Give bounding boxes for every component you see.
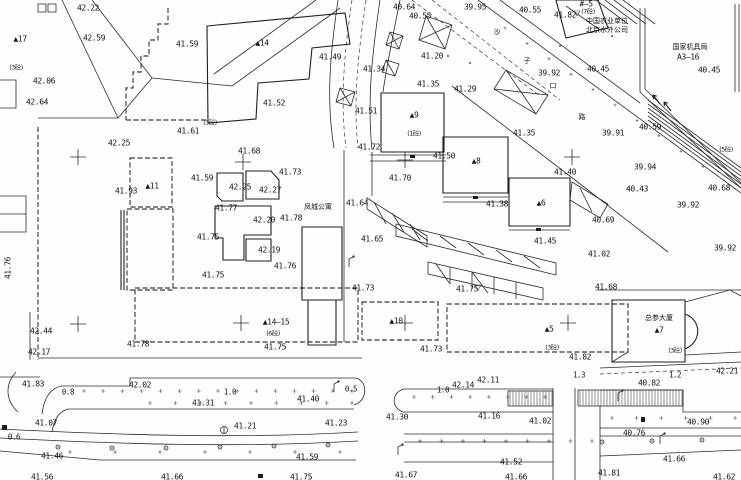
- spot-elevation-label: 39.91: [602, 129, 625, 138]
- building-number-label: ▲9: [410, 111, 419, 120]
- survey-cross-icon: [233, 315, 249, 331]
- spot-elevation-label: 42.25: [229, 183, 252, 192]
- spot-elevation-label: 41.30: [386, 413, 409, 422]
- spot-elevation-label: 41.66: [663, 455, 686, 464]
- solid-mark-icon: [641, 417, 645, 422]
- spot-elevation-label: 41.38: [486, 200, 509, 209]
- spot-elevation-label: 40.64: [393, 3, 416, 12]
- street-lamp-icon: [660, 434, 664, 444]
- spot-elevation-label: 41.59: [176, 40, 199, 49]
- spot-elevation-label: 39.92: [677, 201, 700, 210]
- place-name-label: 沙: [494, 28, 501, 36]
- survey-tick-icon: [548, 57, 551, 60]
- tree-symbols-layer: [56, 426, 704, 450]
- solid-mark-icon: [2, 425, 7, 430]
- spot-elevation-label: 42.20: [253, 216, 276, 225]
- survey-tick-icon: [273, 389, 277, 393]
- spot-elevation-label: 41.35: [417, 80, 440, 89]
- spot-elevation-label: A3—16: [677, 53, 700, 62]
- tree-icon: [701, 439, 702, 440]
- spot-elevation-label: 41.46: [41, 452, 64, 461]
- spot-elevation-label: 41.75: [197, 233, 220, 242]
- tree-icon: [651, 440, 652, 441]
- spot-elevation-label: 39.95: [464, 3, 487, 12]
- spot-dot-icon: [559, 45, 561, 47]
- spot-elevation-label: 41.70: [389, 174, 412, 183]
- place-name-label: 口: [550, 82, 557, 90]
- spot-elevation-label: 42.27: [259, 186, 282, 195]
- survey-cross-icon: [235, 154, 251, 170]
- building-number-label: ▲7: [655, 326, 664, 335]
- survey-tick-icon: [248, 450, 252, 454]
- storey-note-label: (6砼): [266, 329, 280, 338]
- spot-elevation-label: 42.17: [28, 348, 51, 357]
- spot-elevation-label: 41.52: [500, 458, 523, 467]
- tree-icon: [273, 445, 274, 446]
- spot-elevation-label: 41.83: [22, 380, 45, 389]
- spot-elevation-label: 41.59: [191, 174, 214, 183]
- spot-elevation-label: 42.11: [477, 376, 500, 385]
- survey-tick-icon: [504, 27, 507, 30]
- survey-tick-icon: [412, 395, 416, 399]
- spot-elevation-label: 41.73: [352, 284, 375, 293]
- survey-tick-icon: [325, 401, 329, 405]
- survey-tick-icon: [635, 416, 639, 420]
- place-name-label: 路: [579, 112, 586, 121]
- street-lamp-icon: [352, 255, 354, 257]
- survey-tick-icon: [274, 401, 278, 405]
- spot-elevation-label: 42.02: [129, 381, 152, 390]
- spot-elevation-label: 41.75: [202, 271, 225, 280]
- place-name-label: 子: [524, 57, 531, 65]
- survey-tick-icon: [82, 389, 86, 393]
- spot-elevation-label: 41.07: [35, 419, 58, 428]
- spot-elevation-label: 42.21: [716, 367, 739, 376]
- dimension-label: 0.5: [345, 385, 357, 394]
- survey-tick-icon: [148, 401, 152, 405]
- spot-elevation-label: 40.45: [587, 65, 610, 74]
- spot-elevation-label: 41.40: [297, 395, 320, 404]
- survey-tick-icon: [249, 401, 253, 405]
- spot-elevation-label: 41.67: [395, 471, 418, 480]
- survey-tick-icon: [113, 450, 117, 454]
- building-number-label: ▲17: [13, 35, 27, 44]
- survey-tick-icon: [197, 389, 201, 393]
- survey-tick-icon: [254, 389, 258, 393]
- place-name-label: 总参大厦: [645, 313, 673, 322]
- spot-elevation-label: 41.75: [264, 343, 287, 352]
- labels-layer: 42.2242.59▲17(3砼)42.0642.6441.59▲1441.49…: [4, 0, 739, 480]
- spot-elevation-label: 42.25: [108, 139, 131, 148]
- dimension-label: 0.8: [62, 388, 75, 397]
- tree-icon: [219, 446, 220, 447]
- storey-note-label: (3砼): [203, 118, 217, 127]
- building-number-label: ▲6: [537, 199, 546, 208]
- survey-tick-icon: [543, 395, 547, 399]
- spot-elevation-label: 41.51: [355, 107, 378, 116]
- spot-elevation-label: 41.29: [454, 85, 477, 94]
- spot-elevation-label: 41.64: [346, 199, 369, 208]
- tree-icon: [57, 446, 58, 447]
- spot-elevation-label: 40.45: [698, 66, 721, 75]
- survey-tick-icon: [636, 119, 639, 122]
- survey-tick-icon: [216, 389, 220, 393]
- building-number-label: ▲11: [145, 182, 159, 191]
- survey-tick-icon: [526, 42, 529, 45]
- spot-elevation-label: 41.93: [115, 187, 138, 196]
- street-lamp-icon: [401, 443, 403, 445]
- spot-elevation-label: 39.92: [538, 69, 561, 78]
- survey-tick-icon: [338, 450, 342, 454]
- survey-tick-icon: [449, 395, 453, 399]
- spot-dot-icon: [447, 55, 449, 57]
- spot-elevation-label: 40.59: [639, 123, 662, 132]
- spot-elevation-label: 40.55: [519, 6, 542, 15]
- spot-elevation-label: 41.45: [534, 237, 557, 246]
- storey-note-label: (3砼): [9, 63, 23, 72]
- survey-tick-icon: [468, 395, 472, 399]
- survey-tick-icon: [614, 104, 617, 107]
- survey-tick-icon: [203, 450, 207, 454]
- utility-manhole-icon: [220, 426, 227, 434]
- spot-elevation-label: 42.14: [452, 381, 475, 390]
- survey-tick-icon: [506, 395, 510, 399]
- spot-elevation-label: 41.35: [513, 129, 536, 138]
- place-name-label: 北京水外公司: [586, 25, 628, 34]
- survey-cross-icon: [70, 149, 86, 165]
- storey-note-label: (1砼): [407, 129, 421, 138]
- spot-elevation-label: 41.75: [456, 285, 479, 294]
- spot-elevation-label: 41.56: [31, 473, 54, 480]
- spot-elevation-label: 40.69: [592, 216, 615, 225]
- spot-elevation-label: 41.21: [234, 422, 257, 431]
- spot-elevation-label: 41.82: [569, 353, 592, 362]
- spot-elevation-label: 41.66: [161, 473, 184, 480]
- spot-elevation-label: 40.43: [626, 185, 649, 194]
- tree-icon: [327, 444, 328, 445]
- survey-tick-icon: [101, 389, 105, 393]
- spot-elevation-label: 41.23: [325, 419, 348, 428]
- spot-elevation-label: 42.06: [33, 77, 56, 86]
- survey-tick-icon: [139, 389, 143, 393]
- spot-elevation-label: 42.44: [30, 327, 53, 336]
- dimension-label: 1.0: [437, 386, 450, 395]
- spot-dot-icon: [469, 62, 471, 64]
- spot-elevation-label: 41.50: [433, 152, 456, 161]
- spot-elevation-label: 41.52: [263, 99, 286, 108]
- traffic-arrow-icon: [653, 95, 660, 104]
- spot-elevation-label: 41.75: [290, 473, 313, 480]
- street-lamp-icon: [334, 382, 338, 392]
- survey-tick-icon: [487, 395, 491, 399]
- spot-elevation-label: 41.16: [478, 412, 501, 421]
- spot-elevation-label: 39.92: [714, 244, 737, 253]
- spot-elevation-label: 41.82: [554, 11, 577, 20]
- crosswalk-hatch-layer: [508, 390, 683, 406]
- tree-icon: [111, 447, 112, 448]
- spot-elevation-label: 41.02: [529, 417, 552, 426]
- street-lamp-icon: [621, 389, 623, 391]
- dimension-label: 1.3: [573, 371, 585, 380]
- survey-tick-icon: [178, 389, 182, 393]
- survey-tick-icon: [610, 416, 614, 420]
- spot-elevation-label: 42.19: [258, 246, 281, 255]
- building-number-label: ▲5: [545, 325, 554, 334]
- survey-tick-icon: [592, 88, 595, 91]
- solid-mark-icon: [473, 196, 478, 199]
- survey-tick-icon: [733, 416, 737, 420]
- survey-tick-icon: [293, 389, 297, 393]
- survey-cross-icon: [397, 152, 413, 168]
- spot-elevation-label: 41.78: [127, 340, 150, 349]
- spot-elevation-label: 41.81: [598, 469, 621, 478]
- buildings-layer: [0, 0, 741, 362]
- survey-tick-icon: [350, 401, 354, 405]
- spot-elevation-label: 42.64: [26, 98, 49, 107]
- spot-elevation-label: 41.73: [279, 168, 302, 177]
- survey-tick-icon: [590, 439, 594, 443]
- spot-elevation-label: 41.61: [177, 127, 200, 136]
- place-name-label: 中国农业单位: [586, 16, 628, 25]
- traffic-arrow-icon: [664, 102, 671, 111]
- place-name-label: 凤城公寓: [304, 202, 332, 211]
- storey-note-label: (7砼): [581, 7, 595, 16]
- street-lamp-icon: [398, 445, 402, 455]
- street-lamp-icon: [349, 257, 353, 267]
- spot-elevation-label: 41.76: [274, 262, 297, 271]
- storey-note-label: (3砼): [668, 346, 682, 355]
- storey-note-label: (5砼): [719, 145, 733, 154]
- spot-elevation-label: 39.94: [634, 163, 657, 172]
- survey-tick-icon: [173, 401, 177, 405]
- survey-tick-icon: [224, 401, 228, 405]
- spot-elevation-label: 41.66: [505, 473, 528, 480]
- tree-icon: [601, 441, 602, 442]
- spot-elevation-label: 40.90: [687, 418, 710, 427]
- place-name-label: 国家机具局: [673, 42, 708, 51]
- survey-tick-icon: [569, 439, 573, 443]
- spot-elevation-label: 41.72: [358, 143, 381, 152]
- tree-icon: [165, 447, 166, 448]
- spot-elevation-label: 40.76: [623, 429, 646, 438]
- building-number-label: ▲14—15: [263, 318, 290, 327]
- building-number-label: ▲14: [255, 39, 269, 48]
- street-lamp-icon: [663, 432, 665, 434]
- spot-elevation-label: 41.65: [361, 235, 384, 244]
- survey-tick-icon: [659, 416, 663, 420]
- survey-tick-icon: [159, 389, 163, 393]
- spot-elevation-label: 41.31: [192, 399, 215, 408]
- survey-tick-icon: [68, 450, 72, 454]
- site-plan-canvas: 42.2242.59▲17(3砼)42.0642.6441.59▲1441.49…: [0, 0, 741, 480]
- spot-elevation-label: 40.82: [638, 379, 661, 388]
- spot-elevation-label: 41.34: [363, 65, 386, 74]
- solid-mark-icon: [258, 474, 263, 478]
- solid-mark-icon: [536, 228, 541, 231]
- spot-elevation-label: 40.68: [708, 184, 731, 193]
- solid-mark-icon: [410, 155, 415, 158]
- building-number-label: ▲10: [389, 317, 403, 326]
- survey-cross-icon: [70, 316, 86, 332]
- spot-elevation-label: 41.59: [296, 453, 319, 462]
- dimension-label: 0.6: [8, 433, 21, 442]
- spot-elevation-label: 41.40: [554, 168, 577, 177]
- survey-tick-icon: [312, 389, 316, 393]
- storey-note-label: (3砼): [545, 343, 559, 352]
- spot-elevation-label: 41.20: [421, 52, 444, 61]
- spot-elevation-label: 42.59: [83, 34, 106, 43]
- survey-tick-icon: [570, 73, 573, 76]
- street-lamp-icon: [337, 380, 339, 382]
- survey-tick-icon: [120, 389, 124, 393]
- spot-elevation-label: 41.02: [588, 250, 611, 259]
- spot-elevation-label: 40.55: [409, 12, 432, 21]
- spot-dot-icon: [611, 35, 613, 37]
- topographic-site-plan: 42.2242.59▲17(3砼)42.0642.6441.59▲1441.49…: [0, 0, 741, 480]
- spot-elevation-label: 41.62: [713, 473, 736, 480]
- spot-elevation-label: #—5: [579, 0, 593, 9]
- survey-tick-icon: [158, 450, 162, 454]
- spot-elevation-label: 42.22: [77, 4, 100, 13]
- spot-elevation-label: 41.76: [4, 256, 13, 279]
- spot-elevation-label: 41.49: [319, 53, 342, 62]
- spot-elevation-label: 41.73: [420, 345, 443, 354]
- flow-arrows-layer: [475, 11, 671, 290]
- survey-tick-icon: [431, 395, 435, 399]
- survey-tick-icon: [658, 134, 661, 137]
- dimension-label: 1.2: [669, 371, 681, 380]
- survey-cross-icon: [560, 315, 576, 331]
- spot-elevation-label: 41.77: [215, 204, 238, 213]
- spot-elevation-label: 41.78: [280, 214, 303, 223]
- street-lamp-icon: [618, 391, 622, 401]
- spot-elevation-label: 41.68: [238, 147, 261, 156]
- dimension-label: 1.0: [224, 388, 237, 397]
- survey-cross-icon: [564, 149, 580, 165]
- building-number-label: ▲8: [472, 157, 481, 166]
- spot-elevation-label: 41.68: [595, 283, 618, 292]
